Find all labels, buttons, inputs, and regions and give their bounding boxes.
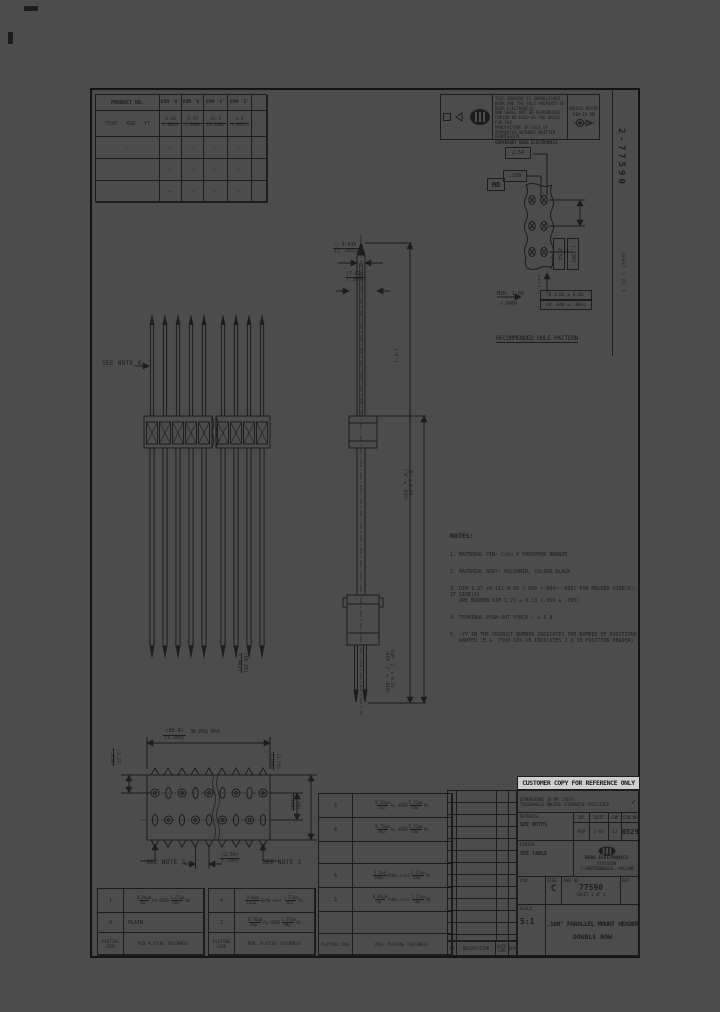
- front-view-tail-dim: (10.20)(.402): [236, 652, 252, 692]
- margin-drawing-number: 2-77590: [616, 128, 626, 248]
- plating-thickness-footer: MIN PLATING THICKNESS: [124, 933, 204, 955]
- col-header-dim-z: DIM 'Z': [228, 95, 252, 111]
- hole-diameter-inch-boxed: (Ø .040 ± .003): [540, 300, 592, 310]
- plating-spec: 0.76μm30μ″ Au OVER 1.27μm50μ″ Ni: [235, 913, 315, 933]
- plating-code: 0: [98, 913, 124, 933]
- plating-spec: 0.05μm2μ″ PdNi over 1.27μm50μ″ Ni: [353, 888, 452, 912]
- see-note-4-label: SEE NOTE 4: [102, 359, 141, 367]
- revision-history-strip: [447, 790, 517, 941]
- dim-b-value: 2.54(.100): [182, 111, 204, 137]
- row-offset-dim: (1.27)(.050): [108, 748, 124, 784]
- date-label: DATE: [590, 813, 609, 823]
- see-note-3-left-label: SEE NOTE 3: [146, 858, 185, 866]
- hole-pattern-caption: RECOMMENDED HOLE PATTERN: [496, 334, 578, 343]
- product-number: 7590 - XXX - YY: [96, 111, 160, 137]
- col-header-dim-b: DIM 'B': [182, 95, 204, 111]
- rev-date-chk-header: DATE CHK: [496, 942, 509, 955]
- check-mark-icon: ✓: [631, 797, 639, 806]
- hole-row-pitch-inch-boxed: (.100): [567, 238, 579, 270]
- plating-code: 1: [98, 889, 124, 913]
- product-dimension-table: PRODUCT NO. DIM 'A' DIM 'B' DIM 'C' DIM …: [95, 94, 267, 202]
- stamp-icon: [443, 113, 451, 121]
- notes-block: NOTES: 1. MATERIAL PIN: CuSn P PHOSPHOR …: [450, 532, 638, 644]
- ecn-label: ECN NO: [622, 813, 639, 823]
- pin-square-dim: □ 0.635(□ .025): [333, 238, 359, 257]
- size-dwg-row: CAD SIZE C DWG NO 77590 SHEET 1 OF 1 REV: [518, 877, 639, 905]
- rev-label: REV: [622, 878, 638, 883]
- revision-strip-footer: NR DESCRIPTION DATE CHK APP: [447, 941, 517, 956]
- fine-print-line: AND SHALL NOT BE REPRODUCED, COPIED OR U…: [495, 111, 565, 125]
- sheet-of-label: SHEET 1 OF 1: [564, 892, 618, 897]
- note-2: 2. MATERIAL BODY: POLYAMID, COLOUR BLACK: [450, 569, 638, 575]
- rev-nr-header: NR: [448, 942, 457, 955]
- tolerance-line-2: TOLERANCES UNLESS OTHERWISE SPECIFIED: [520, 802, 629, 807]
- dim-a-value: 0.56(.022): [160, 111, 182, 137]
- certification-block: THIS DRAWING IS UNPUBLISHED WORK AND THE…: [440, 94, 600, 140]
- material-approvals-row: MATERIAL SEE NOTES DR DATE CHK ECN NO Mv…: [518, 813, 639, 841]
- company-location: 'S-HERTOGENBOSCH - HOLLAND: [579, 866, 634, 871]
- plating-code: 8: [319, 818, 353, 842]
- ecn-value: 0529: [622, 823, 639, 840]
- dr-value: MvB: [574, 823, 590, 840]
- certification-marks: [441, 95, 493, 139]
- material-value: SEE NOTES: [520, 822, 571, 828]
- plating-table-3: 3 0.38μm15μ″ Au OVER 1.27μm50μ″ Ni 8 0.7…: [318, 793, 453, 956]
- plating-code-footer: PLATING CODE: [98, 933, 124, 955]
- note-3: 3. DIM 1.27 +0.11/-0.05 (.050 +.004/-.00…: [450, 586, 638, 598]
- plating-thickness-footer: MIN. PLATING THICKNESS: [235, 933, 315, 955]
- drawing-title-line-1: .100″ PARALLEL MOUNT HEADER: [546, 920, 638, 928]
- scan-artifact: [8, 32, 13, 44]
- row-pitch-dim: (2.54)(.100): [268, 752, 284, 788]
- dim-b-tolerance: 'B' ± 0.38 ('B' ± .015): [396, 468, 412, 554]
- customer-copy-banner: CUSTOMER COPY FOR REFERENCE ONLY: [517, 776, 640, 790]
- hole-pitch-mm-boxed: 2.54: [505, 147, 531, 159]
- size-value: C: [546, 884, 561, 894]
- scale-title-row: SCALE 5:1 .100″ PARALLEL MOUNT HEADER DO…: [518, 905, 639, 955]
- plating-spec: 0.38μm15μ″ Au OVER 1.27μm50μ″ Ni: [353, 794, 452, 818]
- top-view-span-dim: (88.9)(3.500) 36 POS MAX: [163, 729, 220, 741]
- min-annular-inch: (.040): [500, 301, 518, 307]
- title-block: DIMENSIONS IN MM (INCH) TOLERANCES UNLES…: [517, 790, 640, 956]
- rev-app-header: APP: [509, 942, 516, 955]
- plating-thickness-footer: MIN. PLATING THICKNESS: [353, 934, 452, 955]
- note-3-cont: ARE BROKEN DIM 1.27 ± 0.13 (.050 ± .005): [459, 598, 638, 604]
- dim-c-reference: ('C'): [392, 348, 398, 363]
- rev-description-header: DESCRIPTION: [457, 942, 496, 955]
- plating-code: 4: [209, 889, 235, 913]
- hole-row-pitch-mm-boxed: 2.54: [553, 238, 565, 270]
- plating-spec: 3.8μm150μ″ SnPb over 1.27μm50μ″ Ni: [235, 889, 315, 913]
- note-1: 1. MATERIAL PIN: CuSn P PHOSPHOR BRONZE: [450, 552, 638, 558]
- note-5-cont: WANTED (E.G. 7590-XXX-18 INDICATES 2 X 1…: [459, 638, 638, 644]
- dim-z-tolerance: DIM 'Z' ± 0.25 (DIM 'Z' ± .010): [378, 650, 394, 722]
- min-annular-mm: MIN. 1.00: [497, 291, 524, 297]
- chk-value: CJ: [609, 823, 622, 840]
- col-header-product: PRODUCT NO.: [96, 95, 160, 111]
- plating-code-footer: PLATING CODE: [319, 934, 353, 955]
- col-header-dim-a: DIM 'A': [160, 95, 182, 111]
- third-angle-projection-icon: [574, 118, 594, 128]
- pin-pitch-dim: (2.54)(.100): [220, 848, 240, 867]
- tolerance-row: DIMENSIONS IN MM (INCH) TOLERANCES UNLES…: [518, 791, 639, 813]
- plating-spec: 0.20μm8μ″ Au OVER 1.27μm50μ″ Ni: [124, 889, 204, 913]
- empty-row-dash: —: [96, 137, 160, 159]
- unless-noted-label: UNLESS NOTED: [569, 106, 598, 111]
- chk-label: CHK: [609, 813, 622, 823]
- plating-code: 5: [319, 888, 353, 912]
- cad-label: CAD: [520, 878, 543, 883]
- drawing-title: .100″ PARALLEL MOUNT HEADER DOUBLE ROW: [546, 905, 639, 955]
- plating-code: 3: [319, 794, 353, 818]
- plating-table-2: 4 3.8μm150μ″ SnPb over 1.27μm50μ″ Ni 2 0…: [208, 888, 316, 956]
- finish-value: SEE TABLE: [520, 851, 571, 857]
- berg-oval-logo-icon: [469, 108, 491, 126]
- plating-spec: 2.5μm100μ″ PdNi over 1.27μm50μ″ Ni: [353, 864, 452, 888]
- housing-width-dim: (7.62)(.300): [345, 267, 365, 286]
- plating-spec: PLAIN: [124, 913, 204, 933]
- max-positions-label: 36 POS MAX: [190, 729, 220, 735]
- col-header-dim-c: DIM 'C': [204, 95, 228, 111]
- hole-diameter-mm-boxed: Ø 1.02 ± 0.08: [540, 290, 592, 300]
- notes-title: NOTES:: [450, 532, 638, 540]
- proprietary-fine-print: THIS DRAWING IS UNPUBLISHED WORK AND THE…: [493, 95, 568, 139]
- body-width-dim: (5.08)(.200): [288, 793, 304, 829]
- scale-value: 5:1: [520, 917, 543, 926]
- dim-z-value: 1.4(.055): [228, 111, 252, 137]
- size-label: SIZE: [546, 877, 561, 884]
- margin-sheet-note: SHEET 1 OF 1: [621, 252, 626, 322]
- material-label: MATERIAL: [520, 814, 571, 819]
- note-4: 4. TERMINAL PUSH-OUT FORCE : ≥ 6 N: [450, 615, 638, 621]
- plating-code: 2: [209, 913, 235, 933]
- company-logo-block: BERG ELECTRONICS DIVISION 'S-HERTOGENBOS…: [574, 841, 639, 876]
- fine-print-line: THIS DRAWING IS UNPUBLISHED WORK AND THE…: [495, 97, 565, 111]
- date-value: 5-94: [590, 823, 609, 840]
- dwg-no-value: 77590: [564, 883, 618, 892]
- projection-box: UNLESS NOTED DIM IN MM: [568, 95, 599, 139]
- margin-divider-line: [612, 88, 613, 356]
- dim-c-value: 33.3(1.310): [204, 111, 228, 137]
- plating-code: 6: [319, 864, 353, 888]
- hole-pitch-inch-boxed: .100: [503, 170, 527, 182]
- plating-table-1: 1 0.20μm8μ″ Au OVER 1.27μm50μ″ Ni 0 PLAI…: [97, 888, 205, 956]
- plating-code-footer: PLATING CODE: [209, 933, 235, 955]
- plating-spec: 0.76μm30μ″ Au OVER 1.27μm50μ″ Ni: [353, 818, 452, 842]
- finish-label: FINISH: [520, 842, 571, 847]
- engineering-drawing-scan: { "margin": { "vertical_dwg": "2-77590",…: [0, 0, 720, 1012]
- dim-units-label: DIM IN MM: [573, 112, 595, 117]
- scale-label: SCALE: [520, 906, 543, 911]
- finish-logo-row: FINISH SEE TABLE BERG ELECTRONICS DIVISI…: [518, 841, 639, 877]
- drawing-title-line-2: DOUBLE ROW: [573, 933, 612, 941]
- see-note-3-right-label: SEE NOTE 3: [262, 858, 301, 866]
- fine-print-line: MANUFACTURE OR SALE OF APPARATUS WITHOUT…: [495, 126, 565, 140]
- dr-label: DR: [574, 813, 590, 823]
- scan-artifact: [24, 6, 38, 11]
- approval-mark-icon: [454, 111, 466, 123]
- berg-oval-logo-icon: [597, 846, 617, 856]
